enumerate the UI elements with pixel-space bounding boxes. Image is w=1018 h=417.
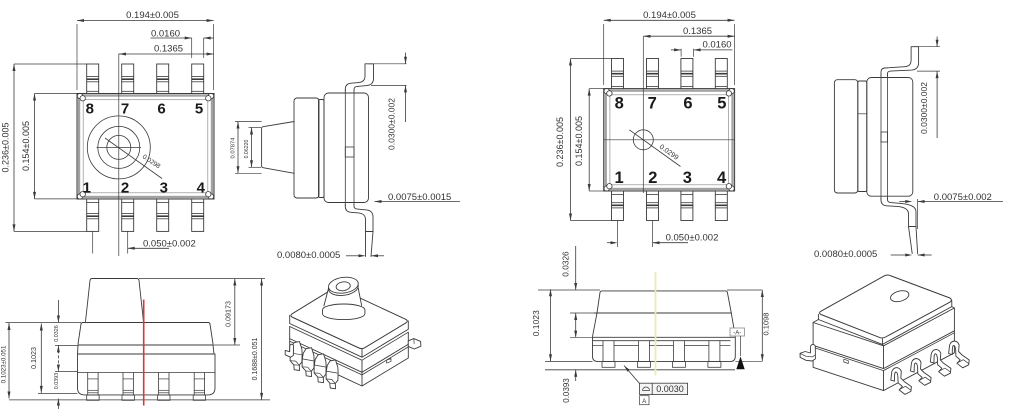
- svg-text:0.07874: 0.07874: [231, 137, 237, 159]
- svg-text:0.050±0.002: 0.050±0.002: [666, 233, 719, 244]
- svg-text:0.0300±0.002: 0.0300±0.002: [919, 82, 929, 134]
- svg-text:0.1365: 0.1365: [154, 44, 183, 55]
- svg-text:4: 4: [197, 180, 206, 197]
- svg-text:0.154±0.005: 0.154±0.005: [574, 116, 584, 166]
- svg-text:0.194±0.005: 0.194±0.005: [126, 10, 179, 21]
- svg-text:0.1023: 0.1023: [29, 347, 38, 369]
- svg-text:4: 4: [717, 169, 727, 187]
- svg-text:3: 3: [160, 180, 168, 197]
- svg-text:0.0080±0.0005: 0.0080±0.0005: [814, 249, 877, 260]
- svg-text:0.1098: 0.1098: [761, 313, 770, 336]
- svg-text:0.1023: 0.1023: [531, 310, 541, 336]
- svg-text:0.0326: 0.0326: [560, 251, 570, 277]
- svg-text:0.0300±0.002: 0.0300±0.002: [387, 98, 397, 150]
- svg-text:0.0160: 0.0160: [702, 40, 731, 51]
- svg-text:7: 7: [121, 101, 129, 118]
- svg-text:6: 6: [157, 101, 165, 118]
- svg-text:0.0393: 0.0393: [54, 373, 60, 390]
- svg-text:0.0393: 0.0393: [562, 378, 571, 403]
- svg-text:3: 3: [683, 169, 692, 187]
- svg-text:2: 2: [648, 169, 657, 187]
- svg-text:0.0075±0.002: 0.0075±0.002: [934, 192, 992, 203]
- svg-text:0.09173: 0.09173: [224, 301, 233, 327]
- svg-text:0.236±0.005: 0.236±0.005: [1, 123, 11, 173]
- svg-text:0.1365: 0.1365: [683, 26, 712, 37]
- svg-text:0.154±0.005: 0.154±0.005: [21, 121, 31, 171]
- svg-text:-A-: -A-: [733, 331, 741, 337]
- svg-text:A: A: [642, 399, 646, 405]
- svg-text:7: 7: [648, 94, 657, 112]
- svg-text:1: 1: [83, 180, 91, 197]
- svg-text:5: 5: [195, 101, 203, 118]
- svg-text:8: 8: [615, 94, 624, 112]
- svg-text:1: 1: [615, 169, 624, 187]
- svg-text:0.06220: 0.06220: [244, 140, 250, 159]
- svg-text:6: 6: [683, 94, 692, 112]
- svg-text:0.0326: 0.0326: [54, 325, 60, 342]
- svg-text:8: 8: [86, 101, 94, 118]
- svg-text:0.1023±0.051: 0.1023±0.051: [1, 345, 8, 383]
- svg-text:0.236±0.005: 0.236±0.005: [555, 117, 565, 167]
- svg-text:0.194±0.005: 0.194±0.005: [643, 10, 696, 21]
- svg-text:0.0075±0.0015: 0.0075±0.0015: [388, 192, 451, 203]
- svg-text:2: 2: [121, 180, 129, 197]
- svg-text:5: 5: [717, 94, 726, 112]
- svg-text:0.0080±0.0005: 0.0080±0.0005: [277, 250, 340, 261]
- svg-text:0.050±0.002: 0.050±0.002: [143, 238, 196, 249]
- svg-text:0.1688±0.051: 0.1688±0.051: [252, 338, 259, 381]
- svg-text:0.0030: 0.0030: [656, 384, 684, 394]
